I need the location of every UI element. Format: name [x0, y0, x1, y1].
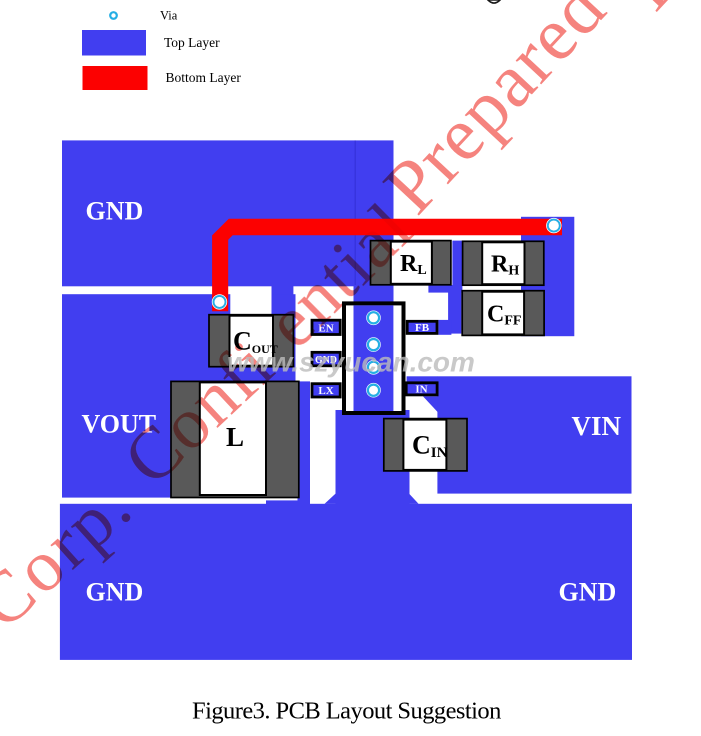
svg-text:Figure3. PCB Layout Suggestion: Figure3. PCB Layout Suggestion	[192, 698, 501, 725]
svg-text:www.szyucan.com: www.szyucan.com	[227, 347, 475, 378]
svg-text:VIN: VIN	[572, 411, 622, 441]
svg-text:Via: Via	[160, 9, 178, 23]
svg-text:FB: FB	[415, 322, 430, 334]
svg-text:LX: LX	[318, 385, 333, 397]
svg-text:GND: GND	[86, 578, 144, 607]
svg-text:IN: IN	[415, 383, 427, 395]
svg-text:GND: GND	[86, 197, 144, 226]
svg-text:Bottom Layer: Bottom Layer	[166, 70, 242, 85]
svg-text:GND: GND	[559, 578, 617, 607]
svg-text:Top Layer: Top Layer	[164, 35, 220, 50]
